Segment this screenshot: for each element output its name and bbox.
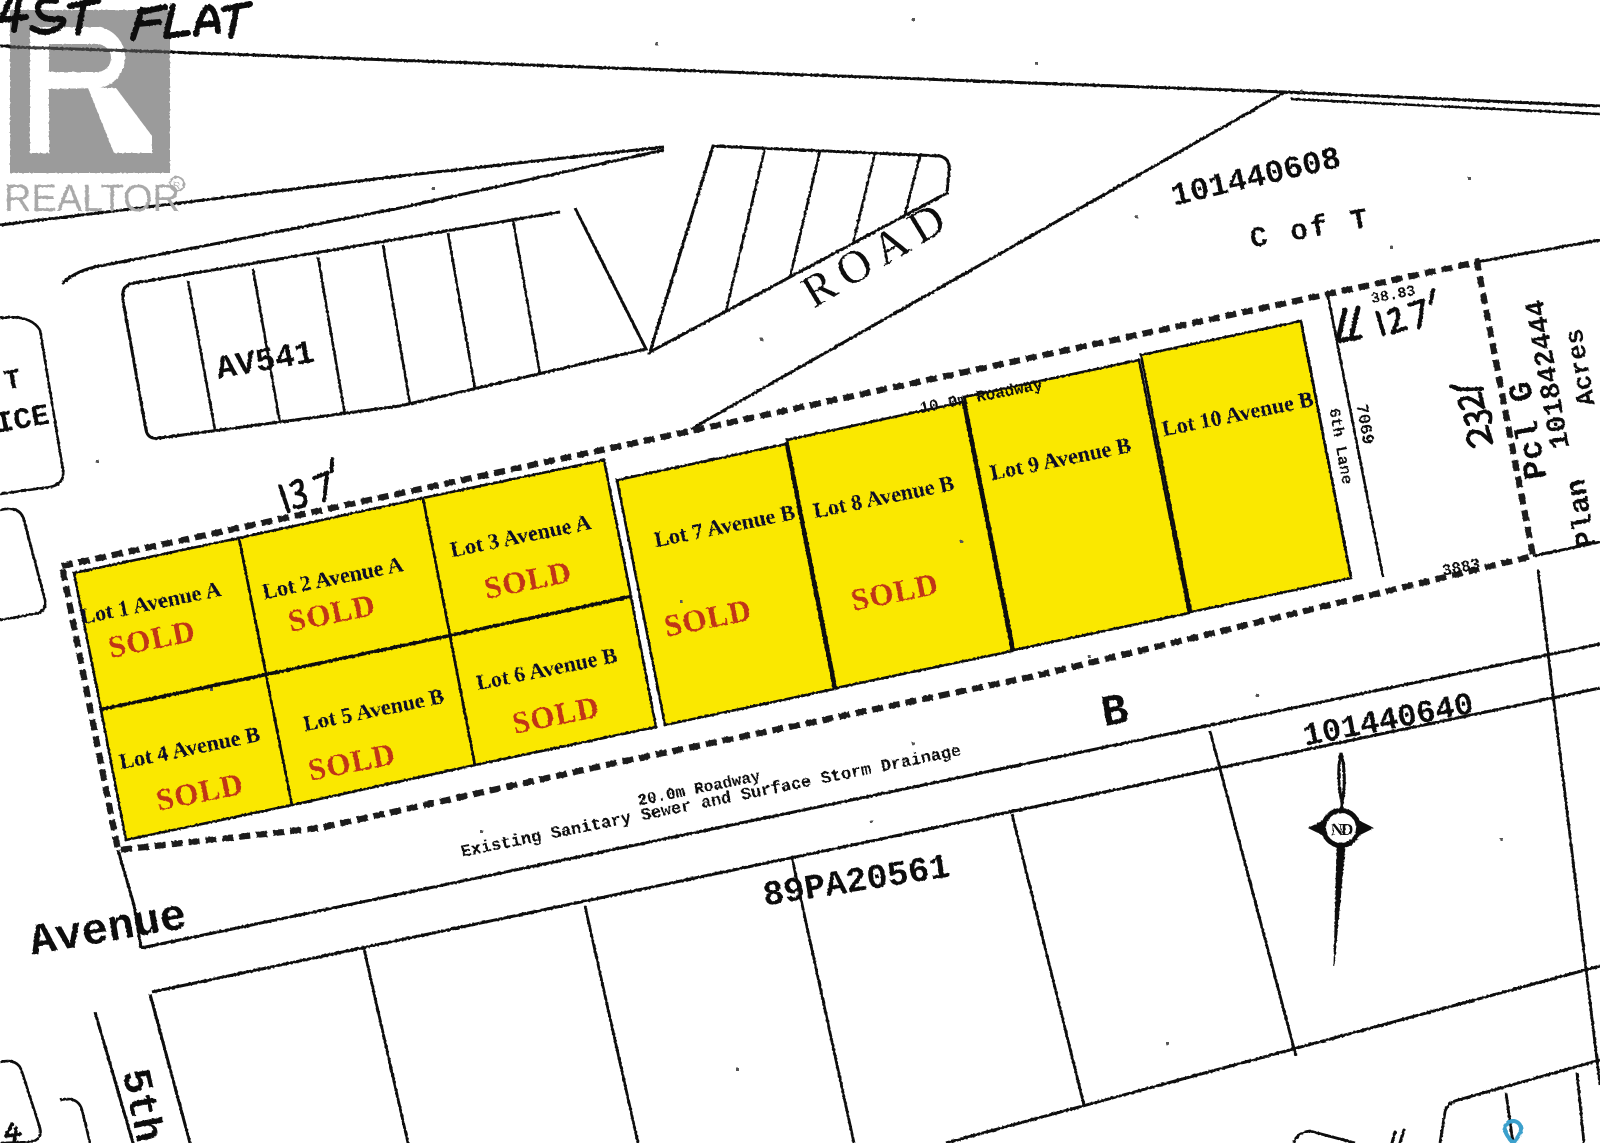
svg-text:R: R: [173, 181, 180, 192]
svg-text:ND: ND: [1331, 820, 1353, 839]
svg-text:REALTOR: REALTOR: [4, 178, 180, 220]
